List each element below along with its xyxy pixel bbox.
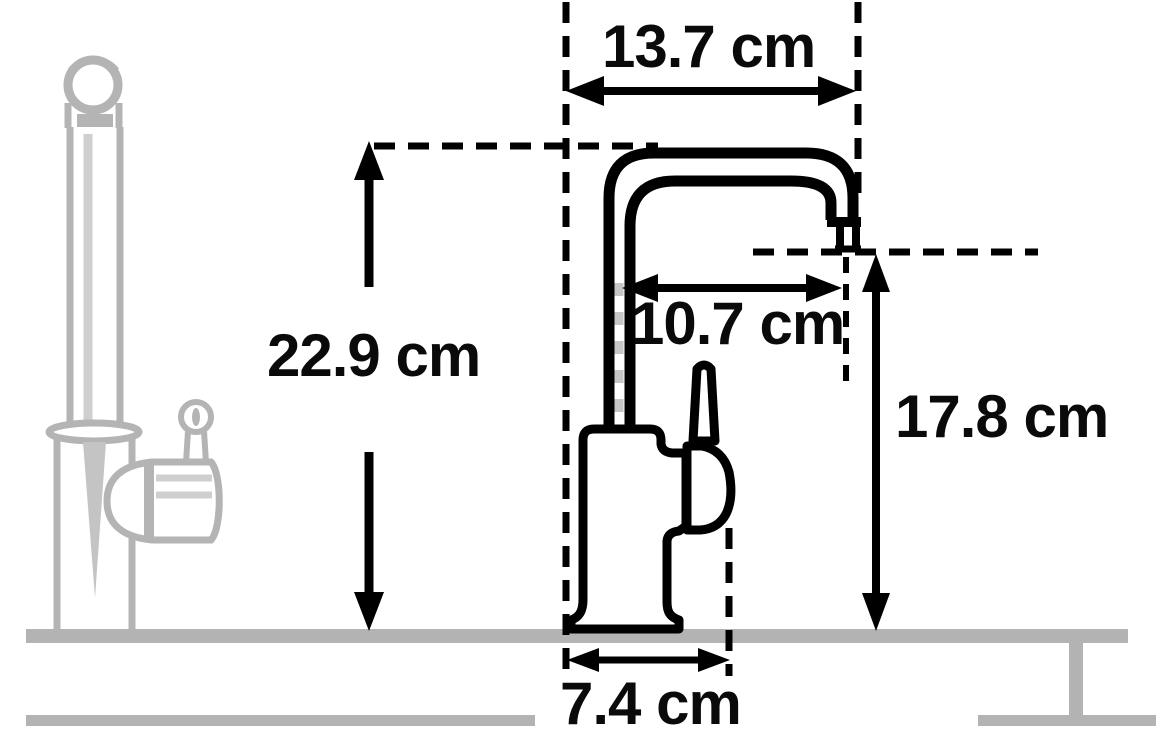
ghost-faucet	[49, 59, 219, 629]
arrowhead-right-icon	[698, 648, 730, 672]
arrowhead-down-icon	[354, 592, 384, 631]
dimension-label-base-width: 7.4 cm	[560, 674, 741, 734]
ghost-loop-ring	[68, 60, 118, 110]
ghost-knob-slit	[192, 408, 200, 426]
ghost-knob-stem	[186, 431, 206, 463]
spout-nozzle	[827, 222, 861, 249]
countertop-edge-post	[1069, 637, 1083, 717]
dimension-label-overall-height: 22.9 cm	[267, 326, 480, 386]
dimension-label-outlet-height: 17.8 cm	[895, 387, 1108, 447]
ghost-flange	[49, 423, 139, 441]
dimension-label-spout-width: 13.7 cm	[602, 17, 815, 77]
diagram-canvas	[0, 0, 1156, 742]
arrowhead-right-icon	[818, 76, 856, 106]
countertop-underline-left	[26, 715, 535, 726]
arrowhead-up-icon	[862, 254, 890, 292]
ghost-collar	[77, 114, 113, 127]
faucet-body	[571, 429, 686, 629]
ghost-body-spike	[83, 442, 106, 598]
dim-arrow-spout-width	[566, 76, 856, 106]
main-faucet	[571, 153, 861, 629]
handle-stem	[693, 365, 715, 441]
dimension-label-spout-reach: 10.7 cm	[631, 294, 844, 354]
faucet-dimension-diagram: 13.7 cm 10.7 cm 22.9 cm 17.8 cm 7.4 cm	[0, 0, 1156, 742]
countertop-underline-right	[978, 715, 1156, 726]
arrowhead-left-icon	[566, 76, 604, 106]
handle-grip	[687, 446, 731, 530]
dim-arrow-base-width	[567, 648, 730, 672]
ghost-valve-cylinder	[107, 462, 219, 540]
arrowhead-down-icon	[862, 593, 890, 631]
arrowhead-left-icon	[567, 648, 599, 672]
dim-arrow-outlet-height	[862, 254, 890, 631]
